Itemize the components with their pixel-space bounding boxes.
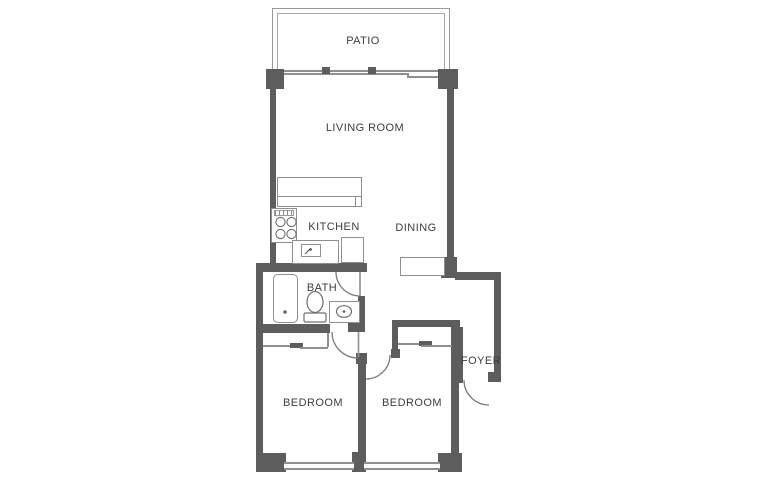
room-label-kitchen: KITCHEN bbox=[308, 221, 359, 233]
wall-segment bbox=[256, 272, 263, 472]
sliding-glass-door bbox=[407, 76, 440, 78]
room-label-patio: PATIO bbox=[346, 35, 380, 47]
wall-segment bbox=[358, 354, 366, 458]
stove-control-panel bbox=[274, 210, 294, 216]
window-left bbox=[284, 462, 354, 470]
bedroom-left-door-arc bbox=[332, 332, 358, 358]
closet-left-slider bbox=[300, 347, 328, 349]
wall-segment bbox=[488, 372, 501, 382]
room-label-bedroom-left: BEDROOM bbox=[283, 397, 343, 409]
sliding-door-handle bbox=[368, 67, 376, 74]
wall-segment bbox=[438, 69, 458, 89]
bar-counter-edge bbox=[355, 196, 356, 207]
closet-left-slider bbox=[263, 345, 293, 347]
wall-segment bbox=[256, 324, 330, 333]
bar-counter bbox=[277, 177, 362, 207]
bathtub bbox=[273, 274, 298, 323]
hall-closet bbox=[400, 257, 445, 276]
closet-left-jamb bbox=[327, 333, 329, 347]
wall-segment bbox=[447, 88, 454, 258]
room-label-bedroom-right: BEDROOM bbox=[382, 397, 442, 409]
vanity bbox=[329, 301, 360, 323]
wall-segment bbox=[266, 69, 284, 89]
sliding-door-handle bbox=[322, 67, 330, 74]
wall-segment bbox=[259, 453, 286, 472]
refrigerator bbox=[341, 237, 364, 263]
room-label-bath: BATH bbox=[307, 282, 337, 294]
wall-segment bbox=[451, 383, 459, 463]
room-label-foyer: FOYER bbox=[461, 355, 501, 367]
kitchen-sink bbox=[301, 244, 321, 257]
wall-segment bbox=[391, 349, 400, 358]
toilet bbox=[304, 292, 326, 323]
window-right bbox=[364, 462, 440, 470]
closet-right-slider bbox=[421, 345, 452, 347]
room-label-living-room: LIVING ROOM bbox=[326, 122, 404, 134]
wall-segment bbox=[438, 453, 462, 472]
floor-plan: PATIO LIVING ROOM KITCHEN DINING BATH FO… bbox=[0, 0, 768, 480]
room-label-dining: DINING bbox=[395, 222, 436, 234]
wall-segment bbox=[392, 320, 460, 327]
bedroom-right-door-arc bbox=[366, 355, 390, 379]
bath-door-arc bbox=[336, 272, 360, 296]
wall-segment bbox=[256, 263, 367, 272]
entry-door-arc bbox=[464, 380, 489, 405]
sliding-glass-door bbox=[283, 70, 440, 72]
sliding-glass-door bbox=[283, 73, 409, 75]
bar-counter-edge bbox=[277, 196, 362, 197]
